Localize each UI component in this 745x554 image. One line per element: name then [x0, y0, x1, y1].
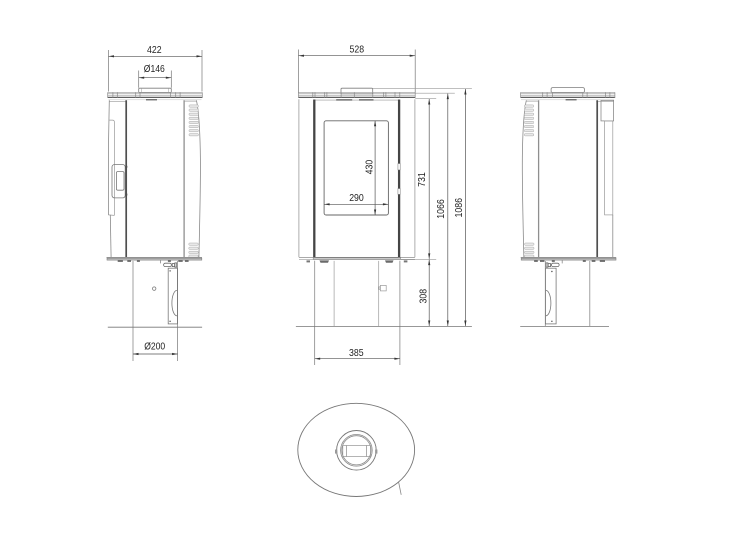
svg-text:422: 422 [147, 44, 162, 56]
svg-text:1086: 1086 [453, 198, 465, 218]
svg-text:Ø200: Ø200 [144, 341, 165, 353]
svg-text:430: 430 [363, 160, 375, 175]
svg-text:290: 290 [349, 192, 364, 204]
svg-text:731: 731 [416, 172, 428, 187]
svg-text:528: 528 [350, 44, 365, 56]
svg-text:308: 308 [418, 289, 430, 304]
svg-text:385: 385 [349, 347, 364, 359]
svg-text:1066: 1066 [435, 199, 447, 219]
svg-text:Ø146: Ø146 [144, 63, 165, 75]
